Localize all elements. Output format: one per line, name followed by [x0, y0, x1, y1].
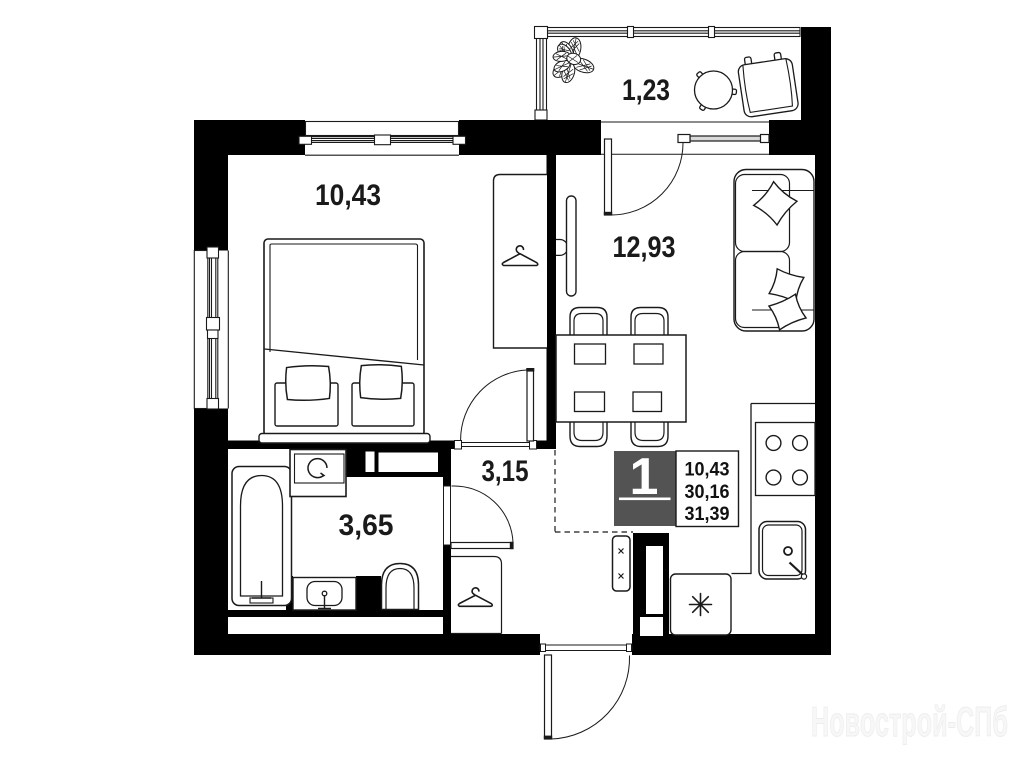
svg-text:10,43: 10,43: [315, 179, 381, 212]
svg-text:10,43: 10,43: [685, 459, 730, 481]
svg-text:Новострой-СПб: Новострой-СПб: [811, 698, 1008, 745]
svg-text:12,93: 12,93: [613, 231, 676, 264]
svg-text:31,39: 31,39: [685, 503, 730, 525]
svg-text:1: 1: [630, 448, 659, 506]
svg-text:3,65: 3,65: [339, 509, 394, 542]
svg-text:30,16: 30,16: [685, 481, 730, 503]
svg-text:1,23: 1,23: [622, 74, 670, 107]
svg-text:3,15: 3,15: [482, 455, 529, 488]
